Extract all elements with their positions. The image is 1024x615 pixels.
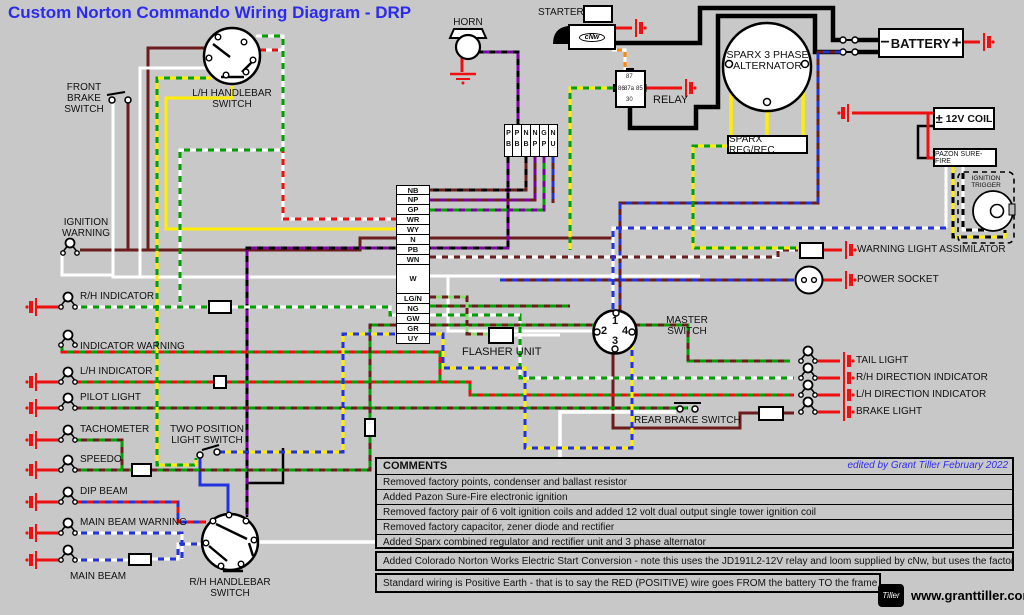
page-title: Custom Norton Commando Wiring Diagram - …: [8, 3, 411, 23]
connector-cell: P B: [504, 124, 513, 157]
connector-cell: GW: [396, 314, 430, 324]
master-switch-label: MASTER SWITCH: [655, 315, 719, 337]
lh-handlebar-switch-symbol: [204, 28, 260, 84]
connector-cell: N P: [531, 124, 540, 157]
battery-box: − BATTERY +: [878, 28, 964, 58]
connector-cell: NG: [396, 304, 430, 314]
connector-cell: P B: [513, 124, 522, 157]
tail-light-label: TAIL LIGHT: [856, 355, 908, 366]
connector-box: [128, 553, 152, 566]
battery-minus: −: [880, 34, 889, 52]
top-connector-block: P B P B N B N P G P N U: [504, 124, 558, 157]
connector-cell: NP: [396, 195, 430, 205]
connector-cell: WY: [396, 225, 430, 235]
relay-pin-85: 85: [636, 86, 643, 92]
comments-header-row: COMMENTS edited by Grant Tiller February…: [377, 459, 1012, 474]
wiring-diagram: Custom Norton Commando Wiring Diagram - …: [0, 0, 1024, 615]
connector-cell: NB: [396, 185, 430, 195]
rear-brake-connector-box: [758, 406, 784, 421]
comment-row: Added Colorado Norton Works Electric Sta…: [375, 551, 1014, 571]
coil-plusminus: ±: [936, 111, 943, 126]
comment-row: Added Sparx combined regulator and recti…: [377, 534, 1012, 549]
speedo-label: SPEEDO: [80, 454, 122, 465]
granttiller-logo: Tiller: [878, 584, 904, 607]
coil-label: 12V COIL: [946, 113, 993, 125]
front-brake-label: FRONT BRAKE SWITCH: [58, 82, 110, 115]
comment-row: Standard wiring is Positive Earth - that…: [375, 573, 881, 593]
comment-row: Removed factory capacitor, zener diode a…: [377, 519, 1012, 534]
ms-pin-3: 3: [612, 336, 618, 347]
comment-row: Removed factory points, condenser and ba…: [377, 474, 1012, 489]
comment-row: Added Pazon Sure-Fire electronic ignitio…: [377, 489, 1012, 504]
rh-direction-label: R/H DIRECTION INDICATOR: [856, 372, 988, 383]
power-socket-symbol: [796, 267, 823, 294]
connector-cell: GR: [396, 324, 430, 334]
rh-indicator-label: R/H INDICATOR: [80, 291, 154, 302]
two-position-label: TWO POSITION LIGHT SWITCH: [168, 424, 246, 446]
relay-pin-30: 30: [626, 97, 633, 103]
connector-cell: W: [396, 265, 430, 294]
starter-label: STARTER: [538, 7, 584, 18]
connector-cell: N B: [522, 124, 531, 157]
bullet-connectors: [840, 37, 858, 55]
alternator-label: SPARX 3 PHASE ALTERNATOR: [725, 50, 810, 72]
harness-connector-block: NB NP GP WR WY N PB WN W LG/N NG GW GR U…: [396, 185, 430, 344]
starter-solenoid-box: [583, 5, 613, 23]
connector-cell: WR: [396, 215, 430, 225]
pazon-box: PAZON SURE-FIRE: [933, 148, 997, 167]
connector-cell: PB: [396, 245, 430, 255]
assimilator-label: WARNING LIGHT ASSIMILATOR: [857, 244, 1006, 255]
rh-handlebar-switch-symbol: [202, 512, 258, 571]
indicator-warning-label: INDICATOR WARNING: [80, 341, 185, 352]
reg-rec-box: SPARX REG/REC: [727, 135, 808, 154]
pilot-light-label: PILOT LIGHT: [80, 392, 141, 403]
relay-label: RELAY: [653, 95, 688, 106]
connector-cell: N U: [549, 124, 558, 157]
relay-pin-87a: 87a: [624, 86, 634, 92]
comments-title: COMMENTS: [383, 460, 447, 474]
connector-box: [364, 418, 376, 437]
website-link: www.granttiller.com: [911, 588, 1024, 603]
brake-light-label: BRAKE LIGHT: [856, 406, 922, 417]
comments-edited-by: edited by Grant Tiller February 2022: [847, 460, 1008, 474]
relay-pin-87: 87: [626, 74, 633, 80]
connector-cell: WN: [396, 255, 430, 265]
connector-box: [213, 375, 227, 389]
horn-symbol: [450, 29, 486, 59]
ms-pin-1: 1: [612, 316, 618, 327]
ms-pin-4: 4: [622, 326, 628, 337]
rear-brake-label: REAR BRAKE SWITCH: [634, 415, 741, 426]
power-socket-label: POWER SOCKET: [857, 274, 939, 285]
starter-motor-box: cNw: [568, 24, 616, 50]
flasher-box: [488, 327, 514, 344]
coil-box: ± 12V COIL: [933, 107, 995, 130]
tachometer-label: TACHOMETER: [80, 424, 149, 435]
lh-indicator-label: L/H INDICATOR: [80, 366, 152, 377]
battery-label: BATTERY: [891, 36, 951, 51]
connector-box: [208, 300, 232, 314]
main-beam-warning-label: MAIN BEAM WARNING: [80, 517, 187, 528]
connector-box: [131, 463, 152, 477]
connector-cell: N: [396, 235, 430, 245]
dip-beam-label: DIP BEAM: [80, 486, 128, 497]
connector-cell: LG/N: [396, 294, 430, 304]
lh-direction-label: L/H DIRECTION INDICATOR: [856, 389, 986, 400]
ignition-warning-label: IGNITION WARNING: [55, 217, 117, 239]
front-brake-switch-symbol: [107, 92, 131, 103]
comment-row: Removed factory pair of 6 volt ignition …: [377, 504, 1012, 519]
comments-table: COMMENTS edited by Grant Tiller February…: [375, 457, 1014, 549]
starter-housing: [553, 26, 568, 44]
battery-plus: +: [952, 33, 962, 53]
assimilator-box: [799, 242, 824, 259]
ms-pin-2: 2: [601, 326, 607, 337]
rh-handlebar-label: R/H HANDLEBAR SWITCH: [186, 577, 274, 599]
main-beam-label: MAIN BEAM: [58, 571, 138, 582]
connector-cell: GP: [396, 205, 430, 215]
connector-cell: G P: [540, 124, 549, 157]
flasher-label: FLASHER UNIT: [462, 347, 541, 358]
starter-logo: cNw: [579, 33, 605, 42]
ignition-trigger-label: IGNITION TRIGGER: [962, 175, 1010, 189]
lh-handlebar-label: L/H HANDLEBAR SWITCH: [188, 88, 276, 110]
two-position-switch-symbol: [197, 445, 220, 458]
connector-cell: UY: [396, 334, 430, 344]
horn-label: HORN: [452, 17, 484, 28]
